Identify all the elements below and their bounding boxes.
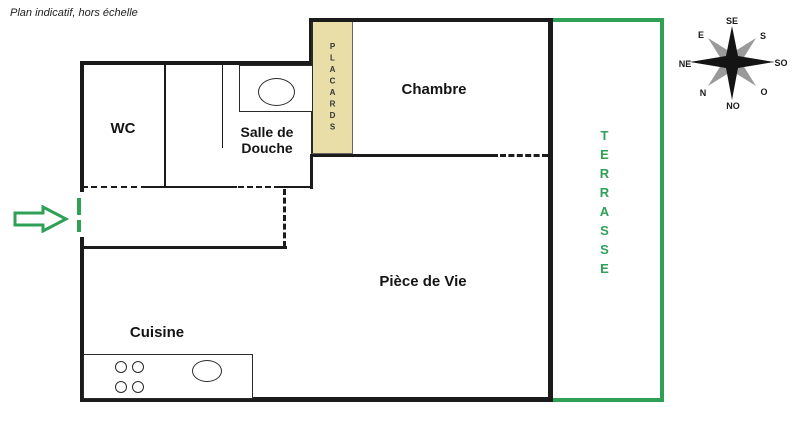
chambre-door-opening xyxy=(500,154,548,157)
compass-label-e: E xyxy=(698,30,704,40)
compass-rose-icon: SE S SO O NO N NE E xyxy=(672,8,792,120)
compass-label-o: O xyxy=(760,87,767,97)
plan-note: Plan indicatif, hors échelle xyxy=(10,7,138,19)
salle-de-douche-label: Salle de Douche xyxy=(227,124,307,156)
compass-label-no: NO xyxy=(726,101,740,111)
wall-chambre-bottom xyxy=(311,154,498,157)
wall-hall-seg-b xyxy=(147,186,237,188)
entrance-arrow-icon xyxy=(13,205,69,233)
douche-door-opening xyxy=(238,186,280,188)
chambre-label: Chambre xyxy=(374,81,494,98)
terrasse-label: TERRASSE xyxy=(597,128,612,280)
compass-label-s: S xyxy=(760,31,766,41)
wc-door-opening xyxy=(91,186,147,188)
entrance-door-dash xyxy=(77,220,81,232)
wall-corridor-bottom xyxy=(82,246,287,249)
kitchen-counter xyxy=(83,354,253,399)
wall-shower-partition xyxy=(222,65,223,148)
stove-burner xyxy=(115,381,127,393)
stove-burner xyxy=(115,361,127,373)
floor-plan: Plan indicatif, hors échelle TERRASSE PL… xyxy=(0,0,800,441)
wall-wc-divider xyxy=(164,63,166,188)
piece-de-vie-label: Pièce de Vie xyxy=(343,273,503,290)
compass-label-n: N xyxy=(700,88,707,98)
placards-strip: PLACARDS xyxy=(311,22,353,154)
wall-hall-seg-a xyxy=(80,186,88,188)
wc-label: WC xyxy=(83,120,163,137)
compass-label-se: SE xyxy=(726,16,738,26)
wall-right xyxy=(548,18,553,402)
compass-label-so: SO xyxy=(774,58,787,68)
stove-burner xyxy=(132,381,144,393)
placards-label: PLACARDS xyxy=(328,42,337,134)
corridor-opening xyxy=(283,189,286,247)
entrance-door-dash xyxy=(77,198,81,215)
washbasin-bowl xyxy=(258,78,295,106)
stove-burner xyxy=(132,361,144,373)
kitchen-sink xyxy=(192,360,222,382)
wall-douche-right xyxy=(310,154,313,189)
wall-hall-seg-c xyxy=(280,186,313,188)
cuisine-label: Cuisine xyxy=(97,324,217,341)
compass-label-ne: NE xyxy=(679,59,692,69)
